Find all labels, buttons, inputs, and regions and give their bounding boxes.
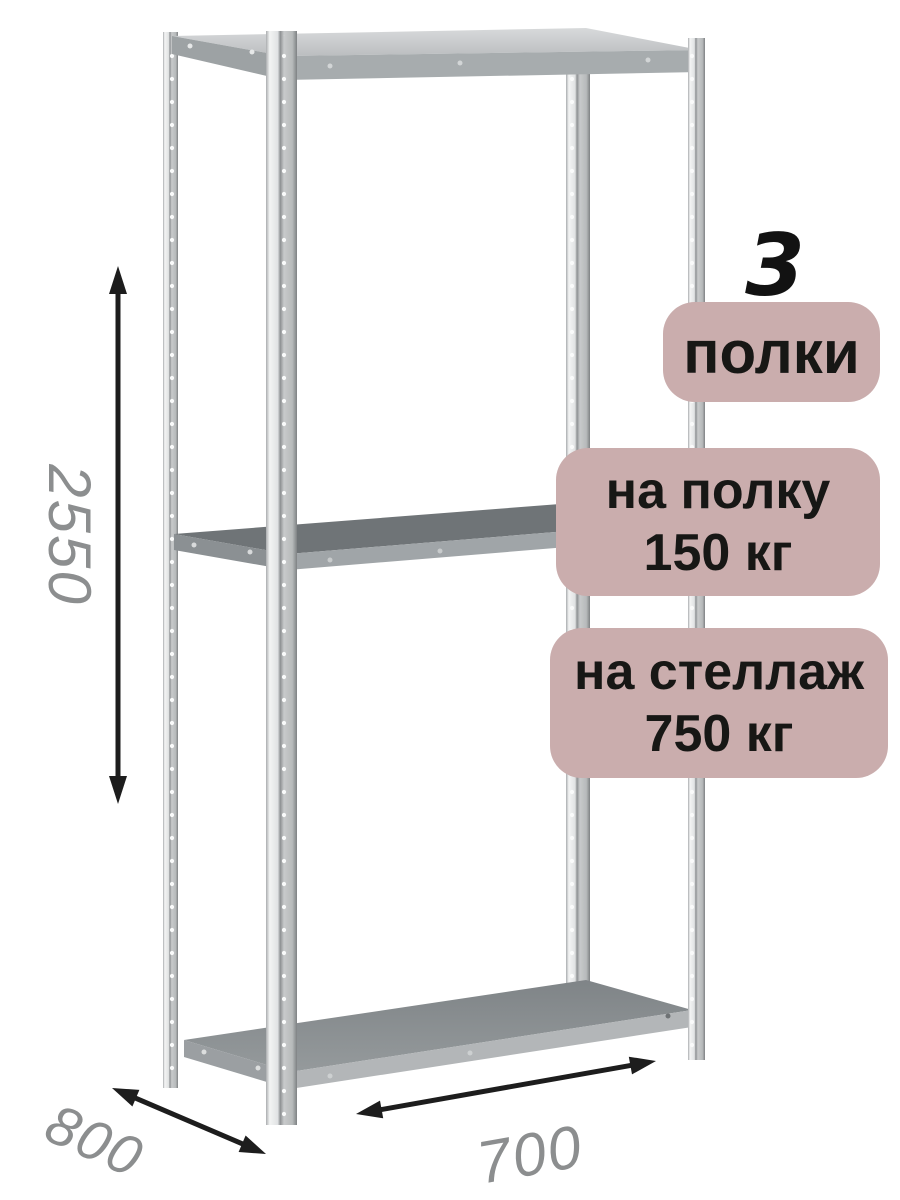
- shelf-top: [172, 28, 700, 80]
- shelf-load-badge: на полку 150 кг: [556, 448, 880, 596]
- badge-line: 150 кг: [644, 522, 793, 584]
- badge-line: на полку: [606, 460, 831, 522]
- shelf-count-number: 3: [730, 218, 820, 314]
- shelf-bottom: [184, 980, 692, 1089]
- badge-line: полки: [683, 318, 859, 387]
- badge-line: на стеллаж: [574, 641, 864, 703]
- post-back-left: [163, 32, 178, 1088]
- badge-line: 750 кг: [645, 703, 794, 765]
- shelves-badge: полки: [663, 302, 880, 402]
- height-dimension-label: 2550: [40, 450, 100, 620]
- rack-drawing: [0, 0, 900, 1200]
- post-front-left: [266, 31, 297, 1125]
- height-arrow: [109, 266, 127, 804]
- rack-load-badge: на стеллаж 750 кг: [550, 628, 888, 778]
- product-image: 2550 800 700 3 полки на полку 150 кг на …: [0, 0, 900, 1200]
